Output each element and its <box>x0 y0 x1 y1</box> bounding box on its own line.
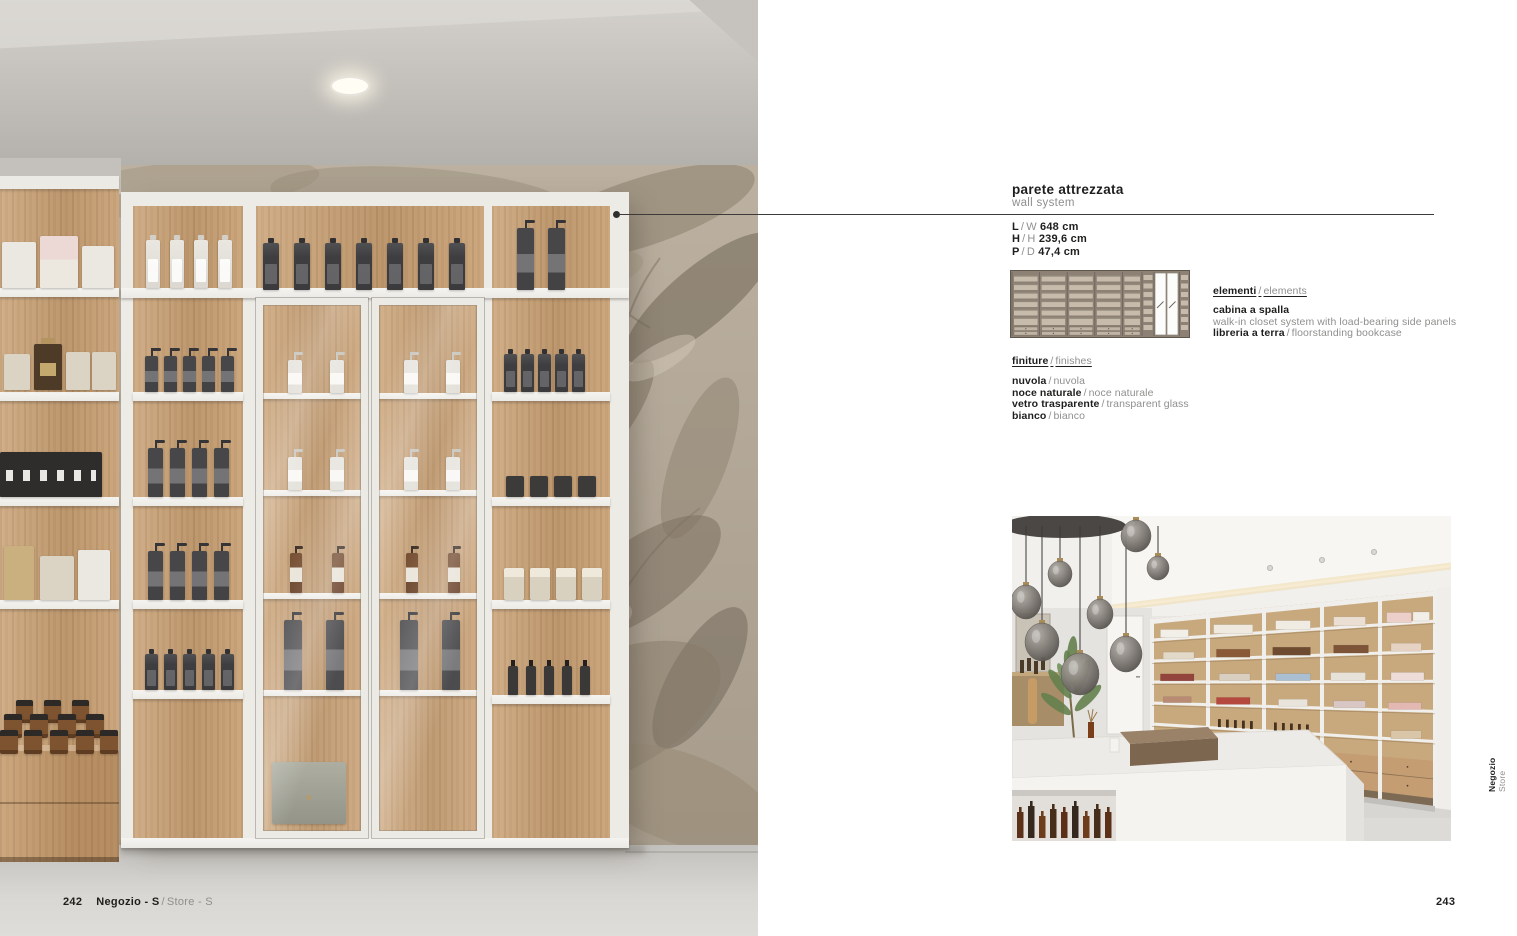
product-item <box>145 356 158 392</box>
product-item <box>356 243 372 290</box>
callout-line <box>618 214 1434 215</box>
dimension-row: L/W 648 cm <box>1012 221 1087 233</box>
product-item <box>170 551 185 600</box>
product-item <box>66 352 90 390</box>
product-item <box>0 730 18 754</box>
product-item <box>538 354 551 392</box>
product-item <box>325 243 341 290</box>
product-item <box>148 448 163 497</box>
product-item <box>164 654 177 690</box>
cup <box>1110 738 1119 752</box>
product-item <box>40 236 78 288</box>
page-number-right: 243 <box>1436 896 1455 908</box>
ceiling-spot <box>1267 565 1272 570</box>
product-item <box>4 354 30 390</box>
product-item <box>530 476 548 497</box>
product-item <box>34 344 62 390</box>
product-item <box>387 243 403 290</box>
product-item <box>555 354 568 392</box>
technical-drawing <box>1010 270 1190 338</box>
product-title-english: wall system <box>1012 197 1124 210</box>
diffuser <box>1088 722 1094 738</box>
product-item <box>218 240 232 288</box>
product-item <box>183 654 196 690</box>
product-item <box>24 730 42 754</box>
glass-door-frame <box>256 298 368 838</box>
product-item <box>221 654 234 690</box>
elements-block: elementi/elements cabina a spalla walk-i… <box>1213 286 1456 340</box>
product-item <box>556 568 576 600</box>
catalog-spread: parete attrezzata wall system L/W 648 cm… <box>0 0 1517 936</box>
finishes-heading: finiture/finishes <box>1012 356 1189 368</box>
dimension-row: H/H 239,6 cm <box>1012 233 1087 245</box>
product-item <box>148 551 163 600</box>
product-item <box>578 476 596 497</box>
finishes-block: finiture/finishes nuvola/nuvola noce nat… <box>1012 356 1189 423</box>
product-item <box>504 568 524 600</box>
product-item <box>526 666 536 695</box>
element-row: libreria a terra/floorstanding bookcase <box>1213 328 1456 340</box>
product-item <box>214 448 229 497</box>
dimension-row: P/D 47,4 cm <box>1012 246 1087 258</box>
wood-sculpture <box>1028 678 1037 724</box>
footer-title: Negozio - S/Store - S <box>96 896 213 908</box>
ceiling-spot <box>1319 557 1324 562</box>
product-item <box>418 243 434 290</box>
product-item <box>192 448 207 497</box>
dimensions-block: L/W 648 cm H/H 239,6 cm P/D 47,4 cm <box>1012 221 1087 258</box>
product-item <box>562 666 572 695</box>
product-item <box>449 243 465 290</box>
product-item <box>214 551 229 600</box>
product-item <box>544 666 554 695</box>
elements-heading: elementi/elements <box>1213 286 1456 298</box>
product-item <box>202 654 215 690</box>
product-item <box>221 356 234 392</box>
product-title-italian: parete attrezzata <box>1012 183 1124 197</box>
product-item <box>582 568 602 600</box>
product-item <box>78 550 110 600</box>
product-title-block: parete attrezzata wall system <box>1012 183 1124 210</box>
side-label-bold: Negozio <box>1487 758 1497 792</box>
product-item <box>517 228 534 290</box>
page-number-left: 242 <box>63 896 82 908</box>
product-item <box>146 240 160 288</box>
element-name: cabina a spalla <box>1213 305 1456 317</box>
product-item <box>170 240 184 288</box>
product-item <box>145 654 158 690</box>
side-label-light: Store <box>1497 758 1507 792</box>
product-item <box>100 730 118 754</box>
product-item <box>506 476 524 497</box>
product-item <box>530 568 550 600</box>
store-photo-left <box>0 0 758 936</box>
product-item <box>170 448 185 497</box>
product-item <box>521 354 534 392</box>
product-item <box>572 354 585 392</box>
product-item <box>508 666 518 695</box>
side-label: Negozio Store <box>1487 758 1507 792</box>
product-item <box>194 240 208 288</box>
door-handle <box>1136 676 1140 678</box>
product-item <box>50 730 68 754</box>
product-item <box>554 476 572 497</box>
glass-door-frame <box>372 298 484 838</box>
footer-left: 242 Negozio - S/Store - S <box>63 896 213 908</box>
product-item <box>504 354 517 392</box>
product-item <box>164 356 177 392</box>
product-item <box>40 556 74 600</box>
product-item <box>192 551 207 600</box>
ceiling-spot <box>1371 549 1376 554</box>
product-item <box>82 246 114 288</box>
product-item <box>183 356 196 392</box>
product-item <box>202 356 215 392</box>
product-item <box>580 666 590 695</box>
product-item <box>2 242 36 288</box>
product-item <box>76 730 94 754</box>
store-photo-right <box>1012 516 1451 841</box>
product-item <box>294 243 310 290</box>
product-item <box>92 352 116 390</box>
product-item <box>4 546 34 600</box>
finish-row: bianco/bianco <box>1012 411 1189 423</box>
product-item <box>548 228 565 290</box>
finishes-list: nuvola/nuvola noce naturale/noce natural… <box>1012 376 1189 423</box>
product-item <box>0 452 102 497</box>
product-item <box>263 243 279 290</box>
